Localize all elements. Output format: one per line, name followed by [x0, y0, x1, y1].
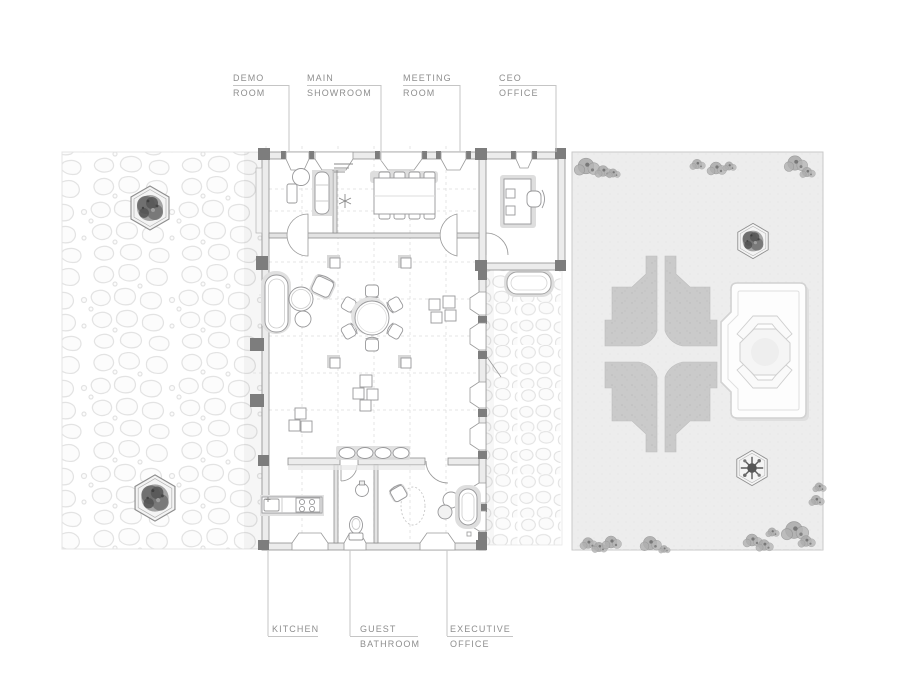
label-main-showroom: MAIN SHOWROOM — [307, 72, 381, 99]
wall-east-ceo — [558, 152, 565, 270]
label-guest-bathroom-line2: BATHROOM — [350, 637, 418, 650]
window-north-3 — [380, 152, 422, 170]
demo-stool — [287, 184, 297, 203]
room-kitchen — [260, 495, 324, 516]
label-meeting-room-line2: ROOM — [403, 86, 460, 99]
label-guest-bathroom: GUEST BATHROOM — [350, 623, 418, 650]
floor-plan-canvas — [0, 0, 900, 690]
wall-bath-office — [374, 465, 378, 543]
window-north-2 — [315, 152, 353, 170]
label-executive-office: EXECUTIVE OFFICE — [447, 623, 513, 650]
stone-plaza — [62, 152, 262, 549]
label-ceo-office-line1: CEO — [499, 72, 556, 86]
demo-round-table — [293, 169, 310, 186]
label-demo-room: DEMO ROOM — [233, 72, 289, 99]
ceo-chair — [527, 191, 541, 207]
label-ceo-office-line2: OFFICE — [499, 86, 556, 99]
showroom-round-table — [355, 301, 389, 335]
window-east-4 — [470, 423, 486, 450]
courtyard-bench — [504, 269, 554, 297]
label-executive-office-line2: OFFICE — [447, 637, 513, 650]
label-main-showroom-line2: SHOWROOM — [307, 86, 381, 99]
window-north-1 — [286, 152, 309, 170]
showroom-pouf-large — [289, 287, 313, 311]
showroom-pouf-small — [295, 311, 311, 327]
room-meeting — [370, 171, 438, 219]
wall-wing-top-a — [288, 458, 340, 465]
window-south-office — [420, 533, 455, 550]
wall-kitchen-bath — [334, 465, 338, 543]
wall-ceo-south — [479, 263, 565, 270]
side-courtyard — [486, 269, 562, 545]
wall-wing-top-c — [448, 458, 479, 465]
label-kitchen-line1: KITCHEN — [268, 623, 318, 637]
kitchen-sink — [264, 499, 279, 511]
window-south-kitchen — [292, 533, 328, 550]
demo-cabinet — [315, 172, 329, 214]
label-kitchen: KITCHEN — [268, 623, 318, 637]
exec-side-table — [438, 505, 452, 519]
floor-plan-page: DEMO ROOM MAIN SHOWROOM MEETING ROOM CEO… — [0, 0, 900, 690]
label-executive-office-line1: EXECUTIVE — [447, 623, 513, 637]
pavilion-octagon-center — [751, 338, 779, 366]
label-ceo-office: CEO OFFICE — [499, 72, 556, 99]
garden-pavilion — [721, 283, 809, 421]
building — [250, 146, 566, 550]
window-east-2 — [470, 323, 486, 350]
shelf-with-bowls — [336, 446, 410, 460]
bath-sink — [356, 484, 369, 497]
garden — [572, 152, 826, 553]
label-meeting-room: MEETING ROOM — [403, 72, 460, 99]
bath-toilet — [350, 517, 363, 534]
label-meeting-room-line1: MEETING — [403, 72, 460, 86]
label-demo-room-line2: ROOM — [233, 86, 289, 99]
label-guest-bathroom-line1: GUEST — [350, 623, 418, 637]
label-demo-room-line1: DEMO — [233, 72, 289, 86]
demo-wall-shelf — [256, 168, 262, 233]
label-main-showroom-line1: MAIN — [307, 72, 381, 86]
